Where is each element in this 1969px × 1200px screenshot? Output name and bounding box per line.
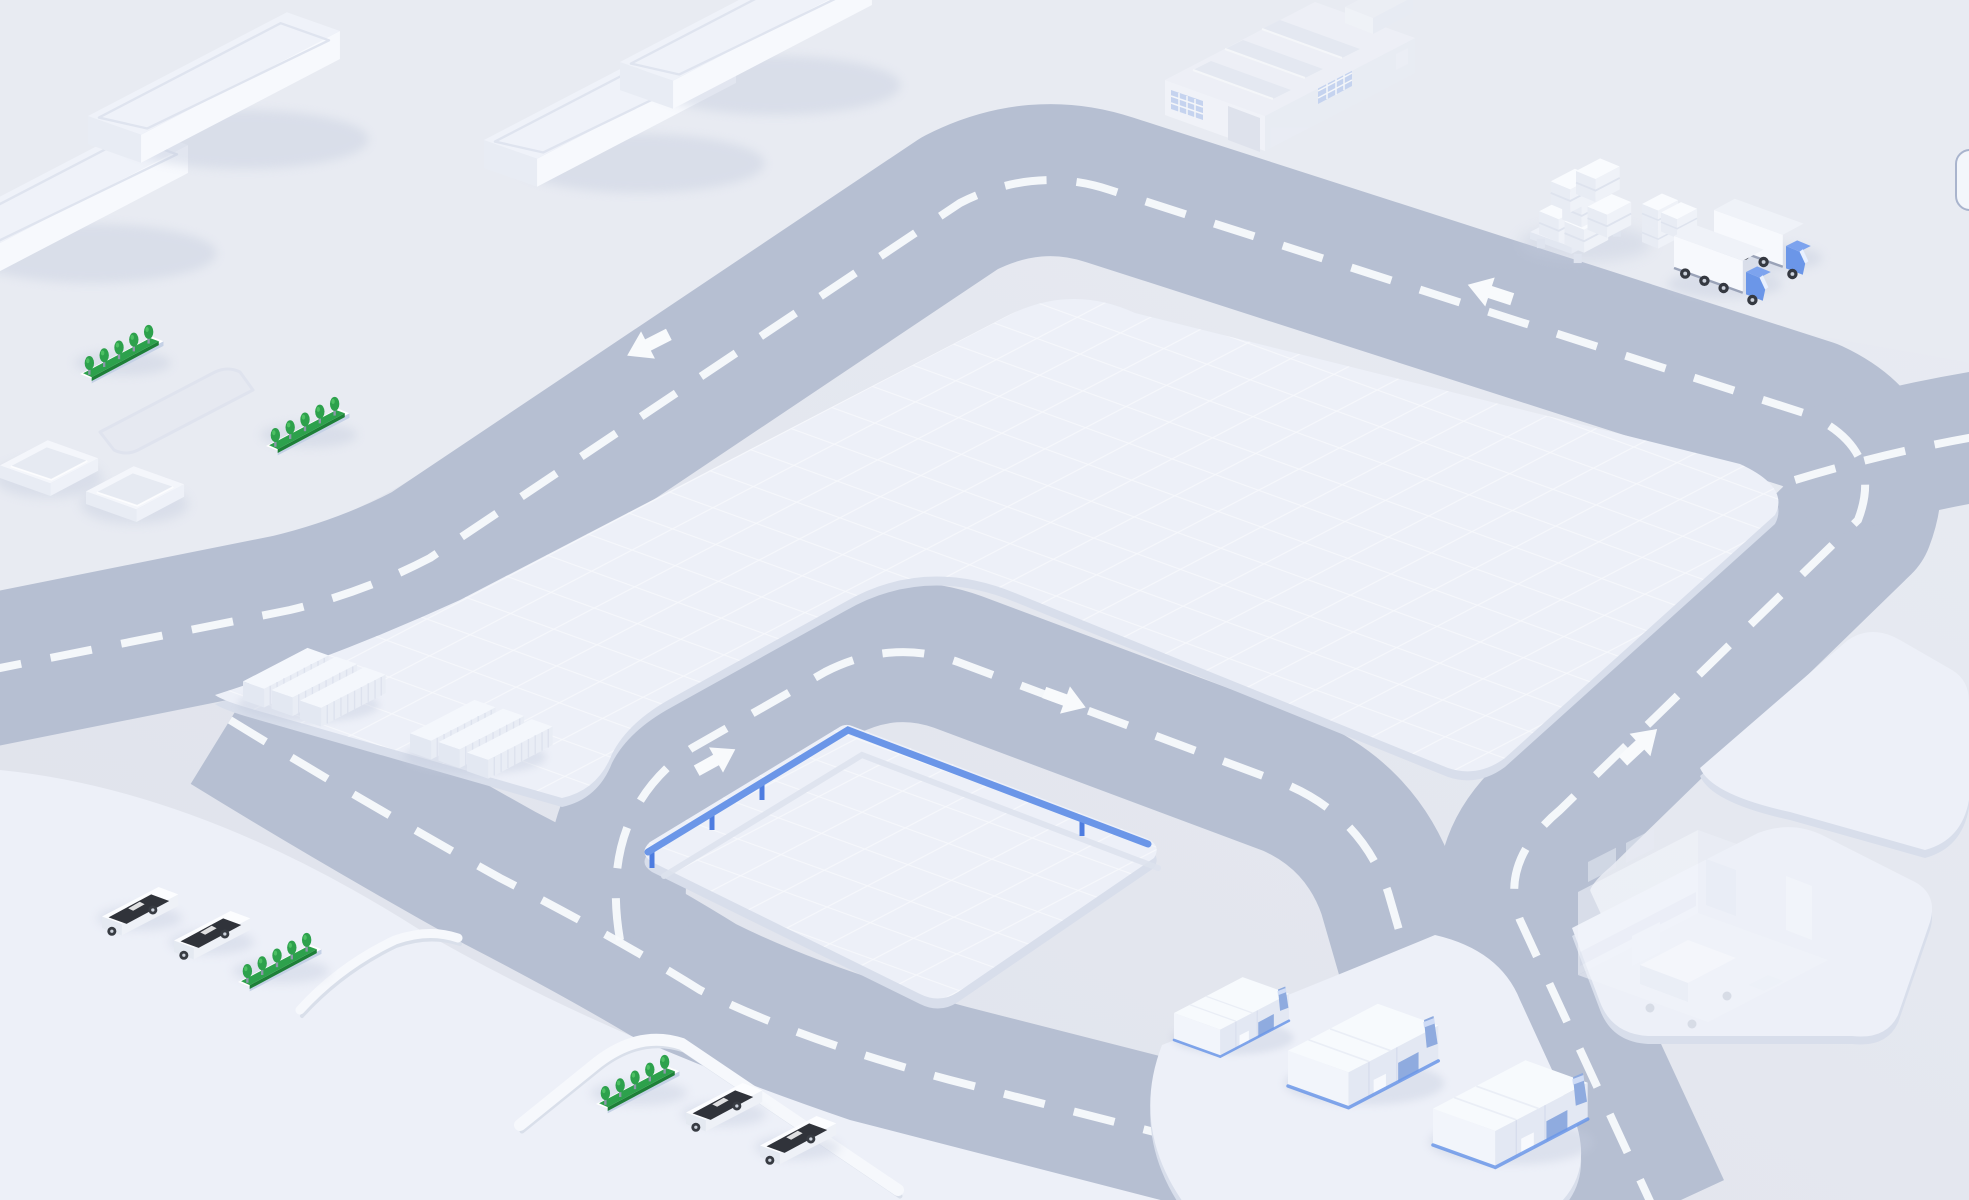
map-canvas	[0, 0, 1969, 1200]
bed-wheel	[1723, 992, 1732, 1001]
edge-widget[interactable]	[1956, 150, 1969, 210]
bed-wheel	[1646, 1004, 1655, 1013]
isometric-map-stage	[0, 0, 1969, 1200]
hospital-door	[1786, 876, 1812, 940]
bed-wheel	[1688, 1020, 1697, 1029]
